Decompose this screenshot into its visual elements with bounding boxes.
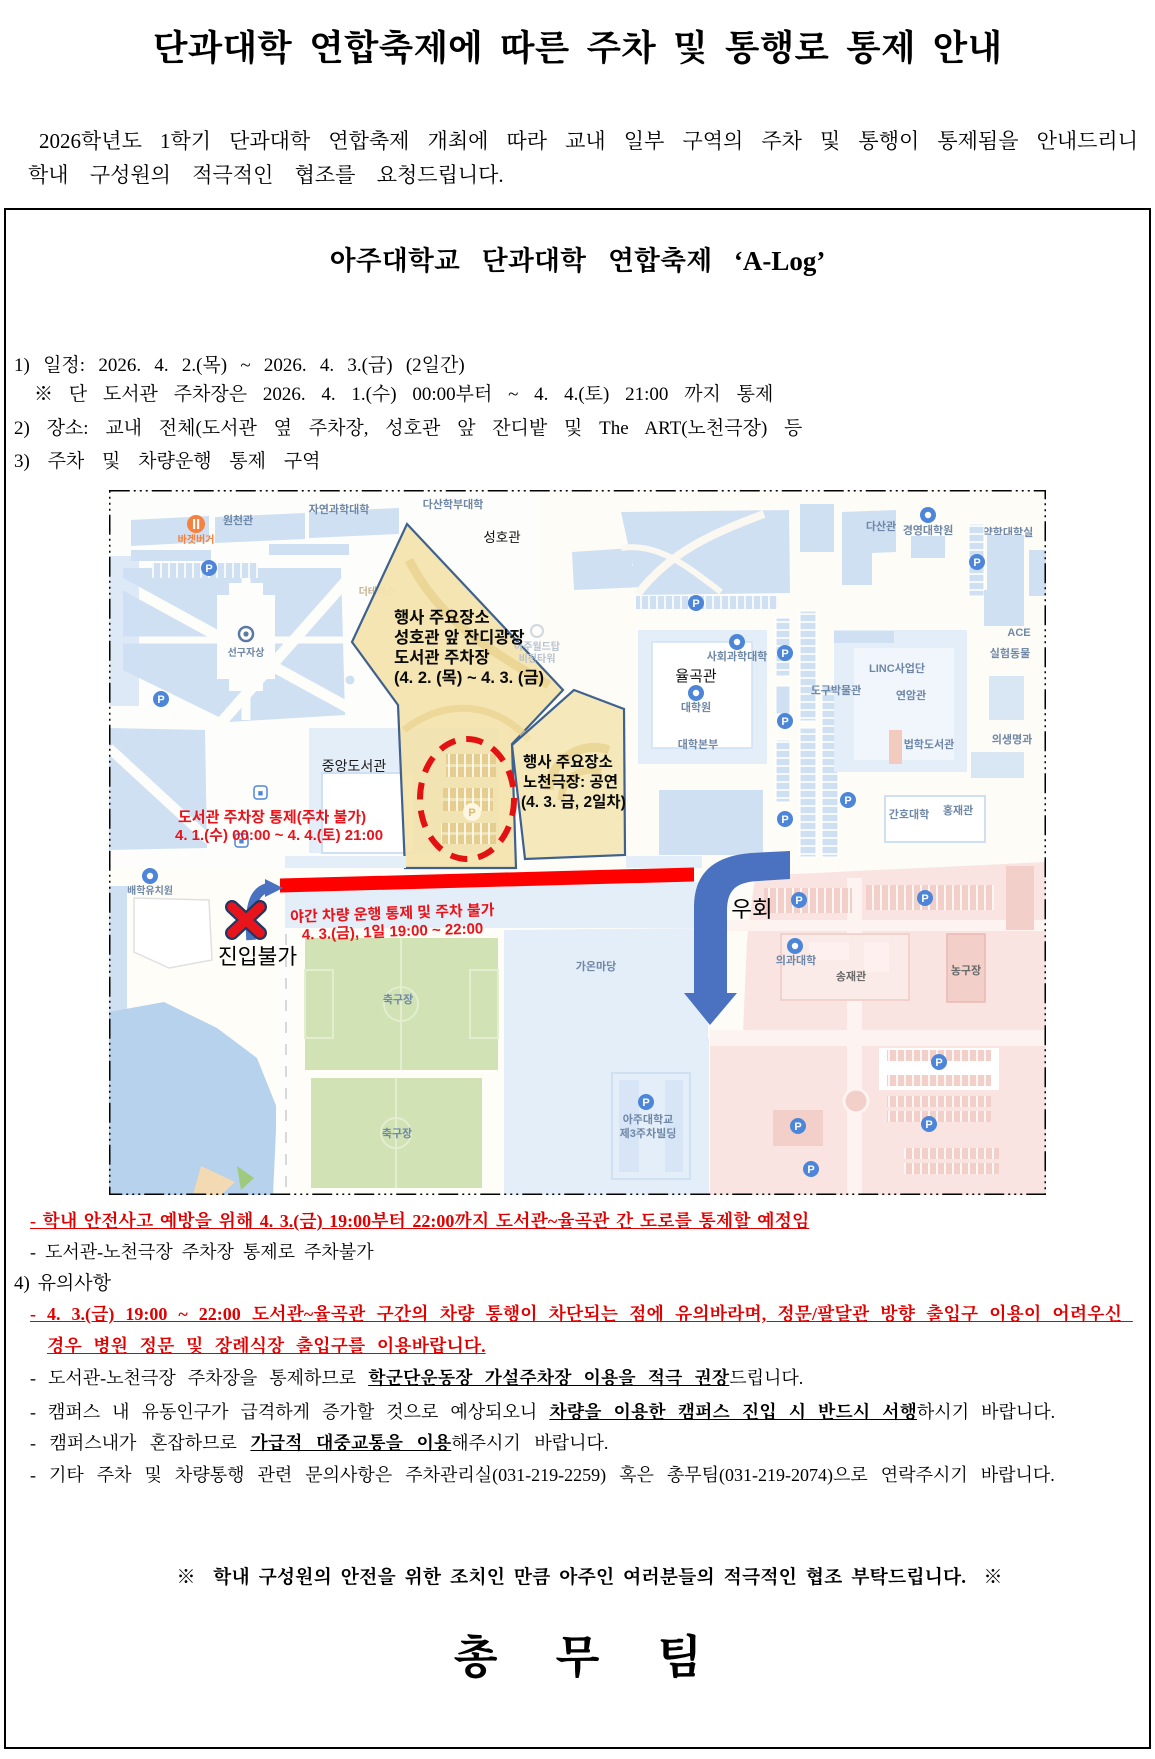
svg-text:ACE: ACE <box>1007 627 1030 639</box>
svg-text:의생명과: 의생명과 <box>992 732 1032 746</box>
svg-text:도서관 주차장 통제(주차 불가): 도서관 주차장 통제(주차 불가) <box>178 809 366 826</box>
svg-text:P: P <box>157 694 164 706</box>
svg-text:P: P <box>642 1097 649 1109</box>
svg-text:(4. 2. (목) ~ 4. 3. (금): (4. 2. (목) ~ 4. 3. (금) <box>394 669 544 687</box>
svg-text:중앙도서관: 중앙도서관 <box>322 758 387 774</box>
svg-text:연암관: 연암관 <box>896 689 926 702</box>
svg-text:바겟버거: 바겟버거 <box>178 533 215 546</box>
svg-text:행사 주요장소: 행사 주요장소 <box>523 753 613 771</box>
svg-text:비전타워: 비전타워 <box>519 652 556 665</box>
svg-text:다산학부대학: 다산학부대학 <box>423 497 484 511</box>
svg-text:원천관: 원천관 <box>223 513 253 527</box>
svg-text:대학본부: 대학본부 <box>678 737 718 751</box>
svg-text:행사 주요장소: 행사 주요장소 <box>394 607 490 627</box>
svg-text:경영대학원: 경영대학원 <box>903 523 954 537</box>
svg-text:축구장: 축구장 <box>383 993 413 1006</box>
svg-text:홍재관: 홍재관 <box>943 803 973 817</box>
svg-text:P: P <box>781 648 788 660</box>
svg-text:성호관: 성호관 <box>483 530 520 545</box>
svg-text:도구박물관: 도구박물관 <box>811 683 862 697</box>
svg-text:제3주차빌딩: 제3주차빌딩 <box>620 1126 677 1140</box>
svg-text:진입불가: 진입불가 <box>218 945 297 969</box>
svg-text:■: ■ <box>258 788 263 798</box>
svg-text:우회: 우회 <box>731 897 772 922</box>
svg-text:다산관: 다산관 <box>866 519 896 533</box>
svg-text:율곡관: 율곡관 <box>675 668 717 685</box>
svg-text:4. 1.(수) 00:00 ~ 4. 4.(토) 21:0: 4. 1.(수) 00:00 ~ 4. 4.(토) 21:00 <box>175 827 383 844</box>
svg-text:의과대학: 의과대학 <box>776 953 816 967</box>
svg-text:P: P <box>794 1121 801 1133</box>
svg-text:P: P <box>205 563 212 575</box>
svg-text:대학원: 대학원 <box>681 700 711 714</box>
svg-text:P: P <box>795 895 802 907</box>
svg-text:P: P <box>468 807 475 819</box>
svg-text:선구자상: 선구자상 <box>228 646 265 659</box>
svg-text:노천극장: 공연: 노천극장: 공연 <box>523 773 618 791</box>
svg-text:P: P <box>807 1164 814 1176</box>
svg-text:도서관 주차장: 도서관 주차장 <box>394 648 490 667</box>
svg-text:배학유치원: 배학유치원 <box>127 884 173 897</box>
svg-text:P: P <box>935 1057 942 1069</box>
svg-text:농구장: 농구장 <box>951 964 981 977</box>
svg-text:P: P <box>692 598 699 610</box>
svg-text:송재관: 송재관 <box>836 969 866 983</box>
svg-text:축구장: 축구장 <box>382 1127 412 1140</box>
svg-text:P: P <box>973 557 980 569</box>
svg-text:가온마당: 가온마당 <box>576 959 616 973</box>
svg-text:(4. 3. 금, 2일차): (4. 3. 금, 2일차) <box>521 793 626 811</box>
svg-text:P: P <box>844 795 851 807</box>
svg-text:자연과학대학: 자연과학대학 <box>309 502 370 516</box>
svg-text:P: P <box>925 1119 932 1131</box>
svg-text:실험동물: 실험동물 <box>990 646 1030 660</box>
svg-text:성호관 앞 잔디광장: 성호관 앞 잔디광장 <box>394 628 525 647</box>
svg-text:사회과학대학: 사회과학대학 <box>707 649 768 663</box>
svg-text:간호대학: 간호대학 <box>889 807 929 821</box>
svg-text:P: P <box>781 814 788 826</box>
svg-text:P: P <box>781 716 788 728</box>
svg-text:P: P <box>921 893 928 905</box>
svg-text:LINC사업단: LINC사업단 <box>869 662 925 675</box>
svg-text:아주대학교: 아주대학교 <box>623 1112 674 1126</box>
svg-text:법학도서관: 법학도서관 <box>904 737 955 751</box>
